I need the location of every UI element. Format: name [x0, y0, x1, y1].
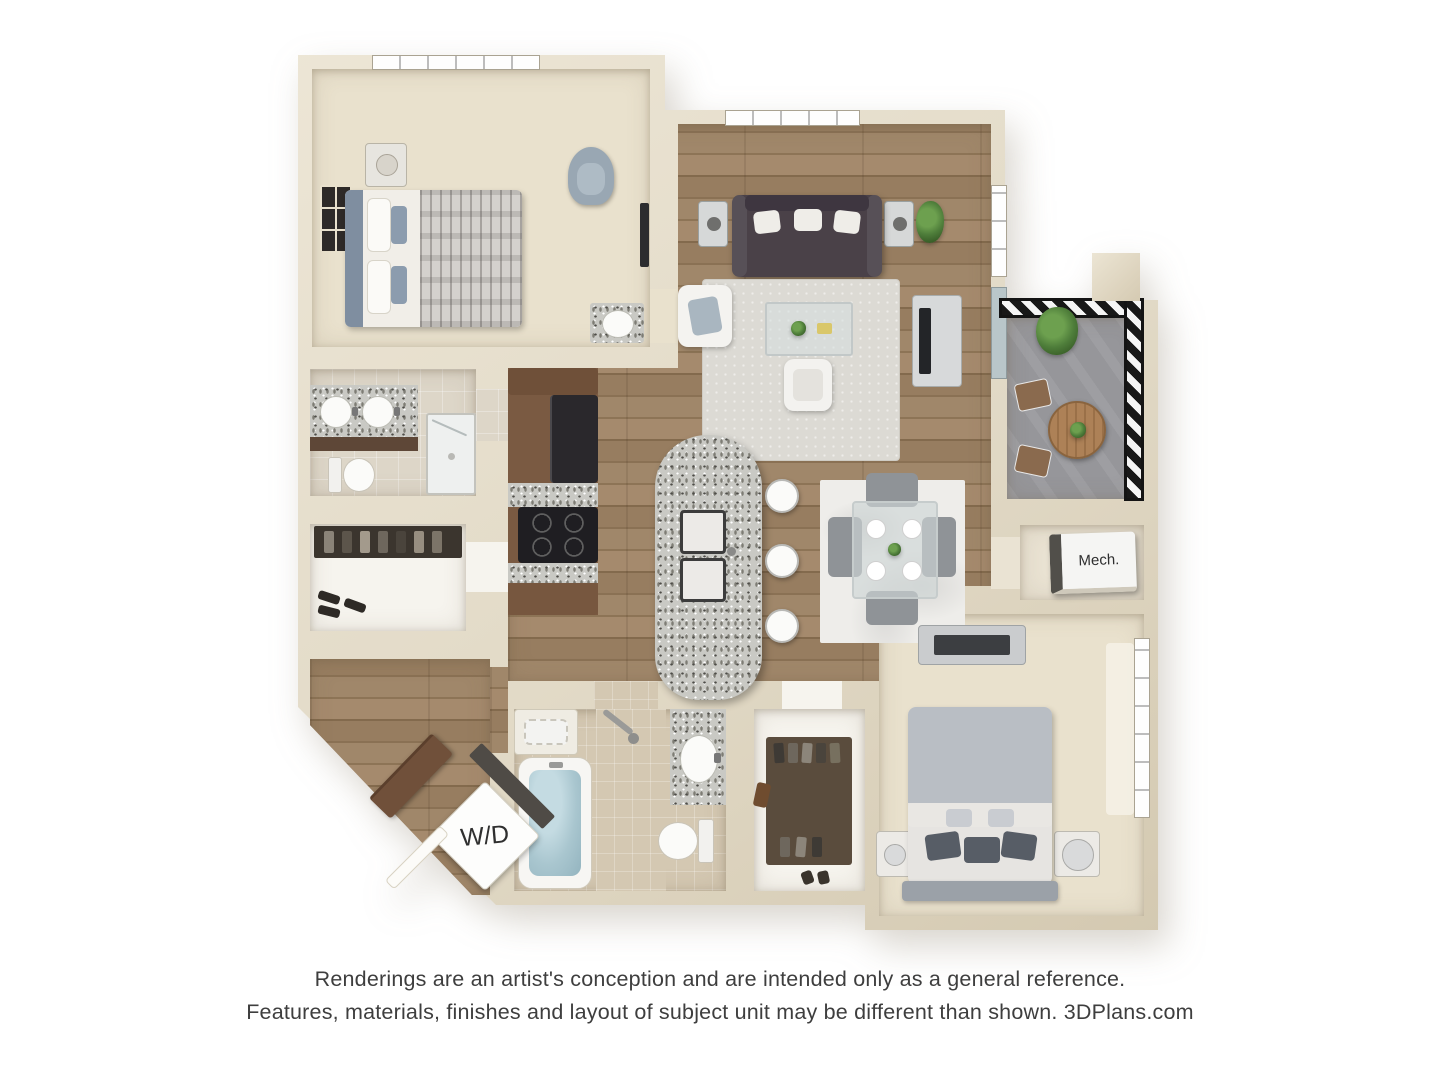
mech-door-opening — [991, 537, 1020, 589]
cooktop — [518, 507, 598, 563]
island-sink — [680, 558, 726, 602]
closet-2-door-opening — [782, 681, 842, 709]
tub-faucet-icon — [549, 762, 563, 768]
floor-plan-rendering: Mech. — [0, 0, 1440, 1080]
hanging-clothes-icon — [378, 531, 388, 553]
bed-2-pillow-dark — [964, 837, 1000, 863]
island-sink — [680, 510, 726, 554]
sofa-pillow — [753, 209, 781, 234]
dresser-bedroom-2 — [918, 625, 1026, 665]
dresser-tv-icon — [934, 635, 1010, 655]
toilet-bowl — [343, 458, 375, 492]
armchair-seat-cushion — [577, 163, 605, 195]
bed-1-accent-pillow — [391, 266, 407, 304]
toilet-bath-2 — [658, 817, 714, 865]
hanging-clothes-icon — [816, 743, 826, 763]
end-table-left — [698, 201, 728, 247]
disclaimer-line-1: Renderings are an artist's conception an… — [0, 963, 1440, 996]
hanging-clothes-icon — [788, 743, 798, 763]
closet-1-wardrobe — [314, 526, 462, 558]
kitchen-counter-granite — [508, 563, 598, 583]
hanging-clothes-icon — [829, 743, 840, 763]
shower-arm-icon — [602, 709, 634, 736]
tv-console — [912, 295, 962, 387]
living-room-window — [725, 110, 860, 126]
bed-2-pillow-dark — [924, 831, 961, 861]
plate-icon — [866, 519, 886, 539]
refrigerator — [550, 395, 598, 483]
hanging-clothes-icon — [780, 837, 790, 857]
table-lamp-icon — [707, 217, 721, 231]
toilet-tank — [328, 457, 342, 493]
tv-icon — [919, 308, 931, 374]
kitchen-counter-run — [508, 368, 598, 615]
dining-table — [852, 501, 938, 599]
bedroom-2-curtain-light — [1106, 643, 1134, 815]
wall-tv-bedroom-1 — [640, 203, 649, 267]
nightstand-bedroom-2-right — [1054, 831, 1100, 877]
toilet-bath-1 — [328, 455, 378, 495]
bed-1-pillow — [367, 260, 391, 314]
vanity-cabinet-bath-1 — [310, 437, 418, 451]
balcony-railing-right — [1124, 298, 1144, 501]
shower-area-bath-2 — [596, 709, 666, 891]
throw-pillow — [687, 296, 723, 337]
faucet-icon — [394, 407, 400, 416]
coffee-table-book — [817, 323, 832, 334]
bathroom-2-door-opening — [594, 681, 658, 709]
disclaimer-line-2: Features, materials, finishes and layout… — [0, 996, 1440, 1029]
shoes-icon — [817, 870, 830, 885]
bedroom-1-window — [372, 55, 540, 70]
round-mirror-icon — [884, 844, 906, 866]
shower-bath-1 — [426, 413, 476, 495]
bed-2-pillow-dark — [1000, 831, 1037, 861]
end-table-right — [884, 201, 914, 247]
faucet-icon — [352, 407, 358, 416]
centerpiece-icon — [888, 543, 901, 556]
patio-table — [1048, 401, 1106, 459]
vanity-sink — [602, 310, 634, 338]
mech-label: Mech. — [1078, 551, 1119, 569]
coffee-table — [765, 302, 853, 356]
closet-1-door-opening — [466, 542, 508, 592]
hanging-clothes-icon — [414, 531, 424, 553]
hanging-clothes-icon — [396, 531, 406, 553]
sofa-arm-right — [867, 195, 882, 277]
vanity-sink — [680, 735, 718, 783]
bathtub — [518, 757, 592, 889]
upper-cabinet — [508, 368, 598, 395]
kitchen-island — [655, 435, 762, 700]
bed-2-duvet — [908, 707, 1052, 803]
shower-glass-icon — [432, 419, 468, 436]
patio-table-plant-icon — [1070, 422, 1086, 438]
nightstand-bedroom-2-left — [876, 831, 912, 877]
shower-head-icon — [628, 733, 639, 744]
bed-1 — [345, 190, 522, 327]
faucet-icon — [714, 753, 721, 763]
armchair-seat-cushion — [793, 369, 823, 401]
faucet-icon — [727, 547, 736, 556]
lamp-icon — [376, 154, 398, 176]
hanging-clothes-icon — [432, 531, 442, 553]
bedroom-1-vanity-counter — [590, 303, 644, 343]
bed-2-fold — [908, 803, 1052, 827]
bed-2 — [908, 707, 1052, 885]
armchair-bedroom-1 — [568, 147, 614, 205]
plate-icon — [866, 561, 886, 581]
nightstand-bedroom-1 — [365, 143, 407, 187]
sofa — [732, 195, 882, 277]
bed-1-pillow — [367, 198, 391, 252]
coffee-table-plant-icon — [791, 321, 806, 336]
bed-2-headboard — [902, 881, 1058, 901]
hanging-clothes-icon — [773, 743, 784, 764]
vanity-bath-1 — [310, 385, 418, 437]
lower-cabinet — [508, 583, 598, 615]
bar-stool — [765, 609, 799, 643]
vanity-sink — [320, 396, 352, 428]
hanging-clothes-icon — [324, 531, 334, 553]
bedroom-1-door-opening — [650, 289, 678, 343]
toilet-tank — [698, 819, 714, 863]
plate-icon — [902, 519, 922, 539]
bed-2-pillow-small — [988, 809, 1014, 827]
sofa-pillow — [833, 209, 861, 234]
vanity-bath-2 — [670, 709, 726, 805]
bed-1-blanket — [420, 190, 522, 327]
bathroom-1-door-opening — [476, 389, 508, 441]
hanging-clothes-icon — [360, 531, 370, 553]
potted-plant-living — [916, 201, 944, 243]
hanging-clothes-icon — [801, 743, 812, 764]
drain-icon — [448, 453, 455, 460]
armchair-living-bottom — [784, 359, 832, 411]
toilet-bowl — [658, 822, 698, 860]
bedroom-2-window — [1134, 638, 1150, 818]
hanging-clothes-icon — [812, 837, 822, 857]
plan-shadow-wrapper: Mech. — [250, 55, 1160, 935]
bar-stool — [765, 479, 799, 513]
towel-basket-icon — [524, 719, 568, 745]
closet-2-rug — [766, 737, 852, 865]
hanging-clothes-icon — [795, 837, 807, 858]
kitchen-counter-granite — [508, 483, 598, 507]
vanity-sink — [362, 396, 394, 428]
balcony-plant — [1036, 307, 1078, 355]
round-mirror-icon — [1062, 839, 1094, 871]
table-lamp-icon — [893, 217, 907, 231]
living-room-side-window — [991, 185, 1007, 277]
floor-plan: Mech. — [250, 55, 1160, 935]
disclaimer: Renderings are an artist's conception an… — [0, 963, 1440, 1029]
hanging-clothes-icon — [342, 531, 352, 553]
bed-2-pillow-small — [946, 809, 972, 827]
entry-kitchen-opening — [490, 667, 508, 753]
linen-shelf — [514, 709, 578, 755]
balcony-pillar — [1092, 253, 1140, 301]
bed-1-accent-pillow — [391, 206, 407, 244]
mech-water-heater-box: Mech. — [1049, 532, 1137, 595]
bed-1-headboard — [345, 190, 363, 327]
washer-dryer-label: W/D — [460, 819, 511, 852]
bar-stool — [765, 544, 799, 578]
sofa-pillow — [794, 209, 822, 231]
armchair-living-left — [678, 285, 732, 347]
plate-icon — [902, 561, 922, 581]
